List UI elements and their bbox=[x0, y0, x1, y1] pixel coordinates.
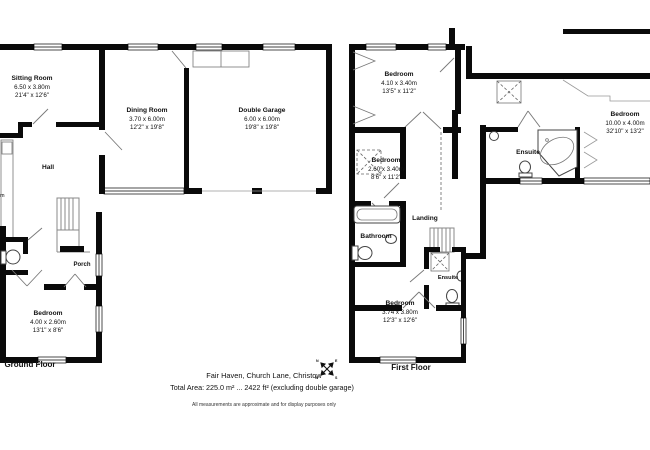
total-area-text: Total Area: 225.0 m² ... 2422 ft² (exclu… bbox=[170, 383, 354, 392]
corner-bathtub-icon bbox=[535, 130, 578, 176]
roof-window-icon bbox=[584, 132, 597, 148]
ensuite-inner-label: Ensuite bbox=[438, 275, 458, 282]
first-bedroom-bottom-label: Bedroom 3.74 x 3.80m 12'3" x 12'6" bbox=[382, 300, 418, 325]
first-floor-title: First Floor bbox=[391, 363, 431, 372]
toilet-icon bbox=[1, 250, 20, 264]
disclaimer-text: All measurements are approximate and for… bbox=[192, 402, 336, 408]
landing-label: Landing bbox=[412, 215, 438, 224]
shower-icon bbox=[497, 81, 521, 103]
window-icon bbox=[96, 306, 102, 332]
window-icon bbox=[520, 178, 542, 184]
staircase-ground bbox=[57, 198, 90, 252]
cutoff-label-fragment: m bbox=[0, 193, 5, 199]
bathroom-label: Bathroom bbox=[360, 233, 391, 242]
first-bedroom-mid-label: Bedroom 2.60 x 3.40m 8'6" x 11'2" bbox=[368, 157, 404, 182]
svg-text:E: E bbox=[335, 359, 338, 363]
window-icon bbox=[584, 178, 650, 184]
sink-icon bbox=[490, 132, 499, 141]
property-address: Fair Haven, Church Lane, Christow bbox=[206, 371, 321, 380]
window-icon bbox=[461, 318, 466, 344]
wardrobe-icon bbox=[353, 52, 375, 70]
toilet-icon bbox=[519, 161, 532, 177]
porch-label: Porch bbox=[73, 262, 90, 270]
wardrobe-icon bbox=[353, 106, 375, 124]
shower-icon bbox=[431, 253, 449, 271]
floorplan-page: N E W S Sitting Room 6.50 x 3.80m 21'4" … bbox=[0, 0, 650, 450]
toilet-icon bbox=[352, 246, 372, 260]
wc-room bbox=[0, 228, 42, 275]
svg-text:N: N bbox=[316, 359, 319, 363]
bathtub-icon bbox=[354, 206, 400, 223]
ensuite-right-label: Ensuite bbox=[516, 149, 540, 158]
hall-label: Hall bbox=[42, 164, 54, 173]
ground-bedroom-label: Bedroom 4.00 x 2.60m 13'1" x 8'6" bbox=[30, 310, 66, 335]
ceiling-line bbox=[563, 80, 650, 101]
kitchen-counter bbox=[1, 140, 13, 238]
double-garage-label: Double Garage 6.00 x 6.00m 19'8" x 19'8" bbox=[239, 107, 286, 132]
ground-floor-title: Ground Floor bbox=[4, 360, 55, 369]
dining-room-label: Dining Room 3.70 x 6.00m 12'2" x 19'8" bbox=[126, 107, 167, 132]
roof-window-icon bbox=[584, 152, 597, 168]
sitting-room-label: Sitting Room 6.50 x 3.80m 21'4" x 12'6" bbox=[11, 75, 52, 100]
first-bedroom-right-label: Bedroom 10.00 x 4.00m 32'10" x 13'2" bbox=[605, 111, 644, 136]
first-bedroom-top-label: Bedroom 4.10 x 3.40m 13'5" x 11'2" bbox=[381, 71, 417, 96]
window-icon bbox=[96, 254, 102, 276]
svg-text:S: S bbox=[335, 376, 338, 380]
window-icon bbox=[104, 188, 184, 194]
